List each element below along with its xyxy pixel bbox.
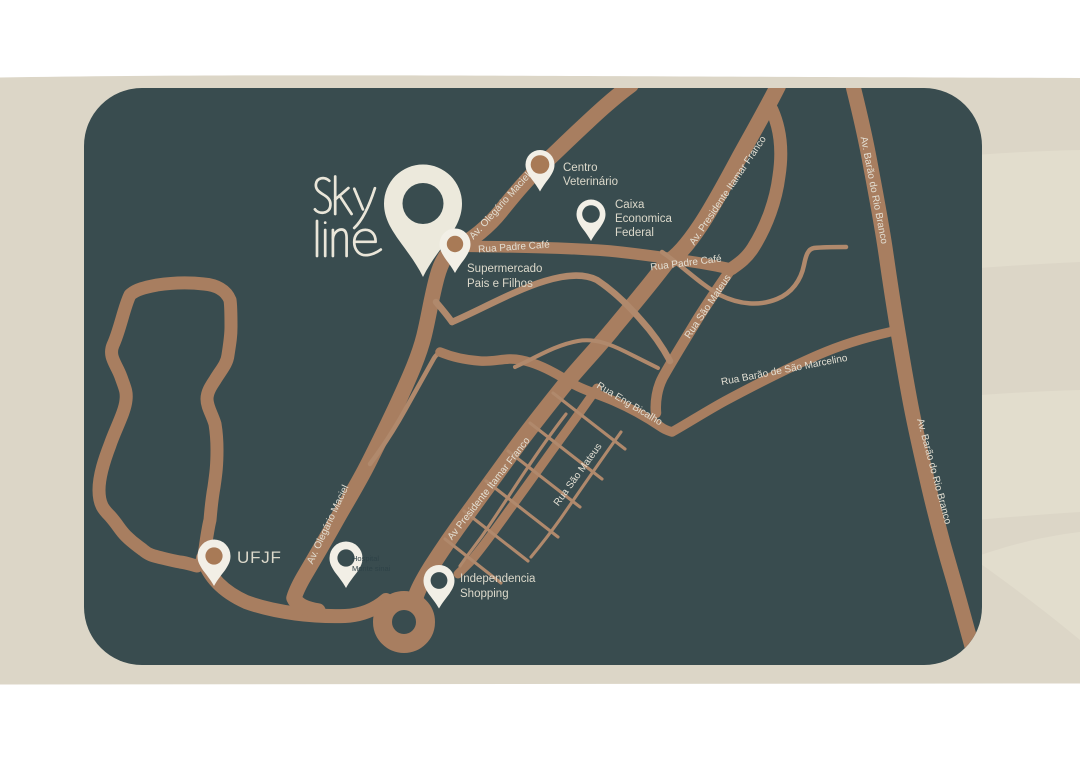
svg-text:Monte sinai: Monte sinai <box>352 564 391 573</box>
svg-text:UFJF: UFJF <box>237 548 282 567</box>
svg-text:Economica: Economica <box>615 213 672 225</box>
svg-text:Supermercado: Supermercado <box>467 263 542 275</box>
svg-text:Independencia: Independencia <box>460 573 536 585</box>
svg-text:Hospital: Hospital <box>352 554 379 563</box>
svg-text:Centro: Centro <box>563 162 598 174</box>
svg-text:Federal: Federal <box>615 227 654 239</box>
svg-text:Pais e Filhos: Pais e Filhos <box>467 278 533 290</box>
svg-text:Shopping: Shopping <box>460 588 509 600</box>
svg-text:Veterinário: Veterinário <box>563 176 618 188</box>
svg-text:Caixa: Caixa <box>615 199 645 211</box>
